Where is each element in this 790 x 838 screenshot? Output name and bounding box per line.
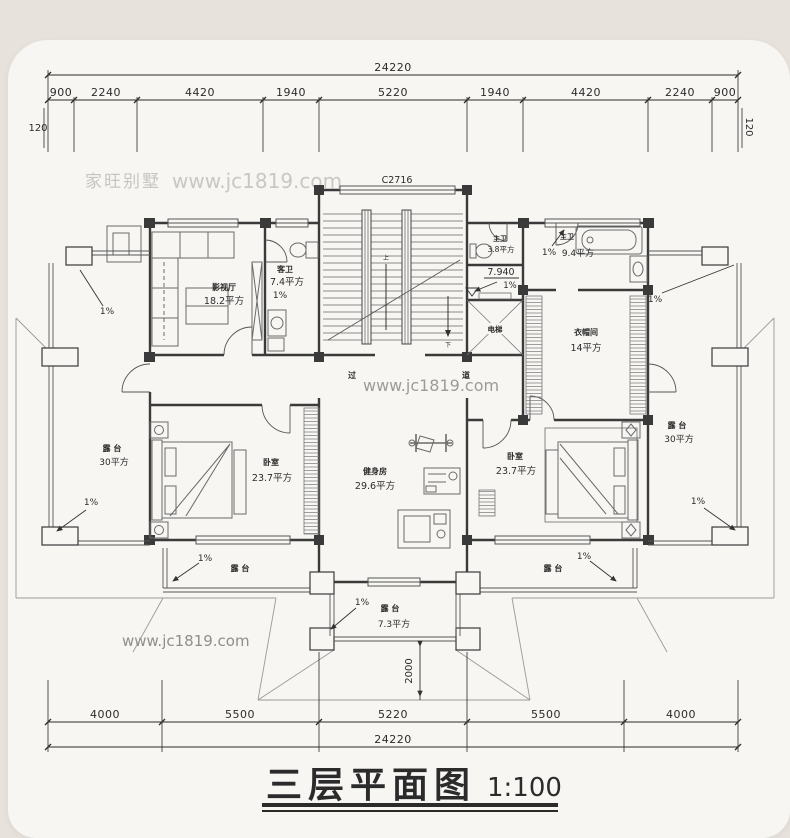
title-underline-thin <box>262 810 558 812</box>
watermark-top: 家旺别墅 www.jc1819.com <box>85 169 342 193</box>
stair-up-label: 上 <box>383 254 389 262</box>
corridor-char-1: 过 <box>348 370 356 380</box>
dim-seg: 5500 <box>531 708 561 721</box>
dim-edge-right: 120 <box>743 117 754 136</box>
slope-label: 1% <box>355 598 370 608</box>
theater-area: 18.2平方 <box>204 295 244 307</box>
bedside-mat <box>479 490 495 516</box>
dim-total-top: 24220 <box>374 61 412 74</box>
slope-label: 1% <box>648 295 663 305</box>
room-master-bath: 主卫 1% 9.4平方 <box>542 226 647 282</box>
dim-seg: 4000 <box>666 708 696 721</box>
bedroom-left-name: 卧室 <box>263 457 279 467</box>
terrace-left-area: 30平方 <box>99 456 128 468</box>
watermark-brand: 家旺别墅 <box>85 172 161 192</box>
terrace-left-name: 露 台 <box>103 443 122 453</box>
title-underline-thick <box>262 803 558 807</box>
dim-seg: 4420 <box>571 86 601 99</box>
guest-bath-slope: 1% <box>273 291 288 301</box>
dim-seg: 900 <box>714 86 737 99</box>
terrace-right: 露 台 30平方 1% 1% <box>648 247 748 545</box>
slope-label: 1% <box>198 554 213 564</box>
slope-label: 1% <box>100 307 115 317</box>
slope-label: 1% <box>691 497 706 507</box>
stair-down-label: 下 <box>445 342 451 349</box>
dim-seg: 1940 <box>480 86 510 99</box>
terrace-lower-right-name: 露 台 <box>544 563 563 573</box>
small-bath-name: 主卫 <box>493 234 507 243</box>
terrace-lower-left-name: 露 台 <box>231 563 250 573</box>
room-theater: 影视厅 18.2平方 <box>107 226 262 346</box>
porch-depth-dimension: 2000 <box>404 642 420 700</box>
room-gym: 健身房 29.6平方 <box>355 434 460 548</box>
master-bath-slope: 1% <box>542 248 557 258</box>
terrace-lower-left: 露 台 1% <box>163 548 326 592</box>
top-dimension-chain <box>44 70 742 152</box>
title-scale: 1:100 <box>487 773 562 803</box>
dim-seg: 4420 <box>185 86 215 99</box>
dim-seg: 2240 <box>665 86 695 99</box>
room-bedroom-left: 卧室 23.7平方 <box>150 408 319 538</box>
theater-name: 影视厅 <box>212 282 236 292</box>
level-value: 7.940 <box>487 267 514 278</box>
room-closet: 衣帽间 14平方 <box>526 296 646 414</box>
closet-name: 衣帽间 <box>574 327 598 337</box>
dim-seg: 900 <box>50 86 73 99</box>
level-slope: 1% <box>503 281 517 291</box>
room-guest-bath: 客卫 7.4平方 1% <box>268 242 318 351</box>
terrace-left: 露 台 30平方 1% 1% <box>42 247 150 545</box>
master-bath-name: 主卫 <box>560 232 574 241</box>
slope-label: 1% <box>84 498 99 508</box>
small-bath-area: 3.8平方 <box>488 244 515 254</box>
gym-name: 健身房 <box>363 466 387 476</box>
corridor-char-2: 道 <box>462 370 470 380</box>
bedroom-right-name: 卧室 <box>507 451 523 461</box>
gym-area: 29.6平方 <box>355 480 395 492</box>
terrace-right-name: 露 台 <box>668 420 687 430</box>
bottom-dimension-labels: 4000 5500 5220 5500 4000 24220 <box>90 708 696 746</box>
closet-area: 14平方 <box>570 342 601 354</box>
dim-seg: 5220 <box>378 86 408 99</box>
dim-total-bottom: 24220 <box>374 733 412 746</box>
bedroom-left-area: 23.7平方 <box>252 472 292 484</box>
title-text: 三层平面图 <box>266 765 476 806</box>
floor-plan-drawing: 家旺别墅 www.jc1819.com www.jc1819.com www.j… <box>0 0 790 838</box>
guest-bath-area: 7.4平方 <box>270 276 304 288</box>
guest-bath-name: 客卫 <box>276 264 293 274</box>
room-small-bath: 主卫 3.8平方 <box>470 234 515 258</box>
window-label-c2716: C2716 <box>382 175 413 186</box>
terrace-lower-right: 露 台 1% <box>460 548 637 592</box>
watermark-bottom: www.jc1819.com <box>122 632 250 650</box>
terrace-front-area: 7.3平方 <box>378 618 410 630</box>
dim-seg: 4000 <box>90 708 120 721</box>
elevator: 电梯 <box>467 293 523 355</box>
dim-porch-depth: 2000 <box>404 658 415 683</box>
dim-seg: 1940 <box>276 86 306 99</box>
drawing-title: 三层平面图 1:100 <box>262 765 562 812</box>
level-mark: 7.940 1% <box>466 267 519 296</box>
dim-seg: 5500 <box>225 708 255 721</box>
dim-seg: 2240 <box>91 86 121 99</box>
terrace-right-area: 30平方 <box>664 433 693 445</box>
bedroom-right-area: 23.7平方 <box>496 465 536 477</box>
staircase: 上 下 <box>323 210 463 349</box>
dim-seg: 5220 <box>378 708 408 721</box>
wardrobe-left <box>304 408 319 534</box>
terrace-front-name: 露 台 <box>381 603 400 613</box>
watermark-center: www.jc1819.com <box>363 376 499 395</box>
master-bath-area: 9.4平方 <box>562 247 594 259</box>
slope-label: 1% <box>577 552 592 562</box>
elevator-label: 电梯 <box>488 324 503 334</box>
dim-edge-left: 120 <box>28 123 47 134</box>
